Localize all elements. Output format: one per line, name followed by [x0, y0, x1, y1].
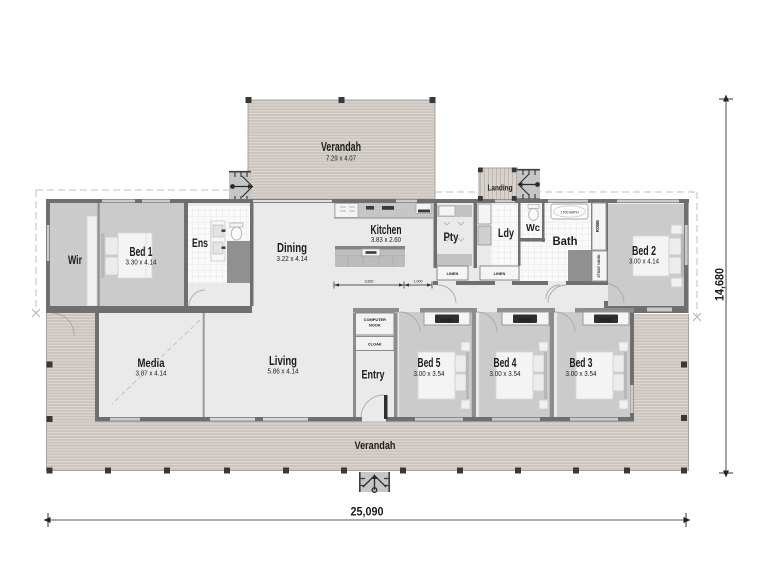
svg-text:Bath: Bath: [553, 234, 578, 248]
svg-text:ROBE: ROBE: [599, 318, 612, 323]
svg-text:NOOK: NOOK: [369, 323, 381, 328]
svg-text:3.87 x 4.14: 3.87 x 4.14: [136, 369, 167, 378]
svg-text:Entry: Entry: [362, 368, 385, 382]
svg-text:3.00 x 3.54: 3.00 x 3.54: [566, 369, 597, 378]
svg-text:Bed 3: Bed 3: [570, 356, 593, 370]
svg-text:3.22 x 4.14: 3.22 x 4.14: [277, 254, 308, 263]
svg-text:3,830: 3,830: [365, 280, 374, 284]
svg-text:Ens: Ens: [192, 238, 208, 250]
svg-text:Wir: Wir: [68, 255, 82, 267]
svg-text:Landing: Landing: [488, 183, 513, 193]
svg-text:25,090: 25,090: [351, 507, 384, 519]
svg-text:Wc: Wc: [526, 222, 540, 234]
svg-text:5.86 x 4.14: 5.86 x 4.14: [268, 367, 299, 376]
svg-text:1,000: 1,000: [414, 280, 423, 284]
svg-text:Bed 5: Bed 5: [418, 356, 441, 370]
svg-text:COMPUTER: COMPUTER: [364, 317, 386, 322]
svg-text:Dining: Dining: [277, 240, 307, 255]
svg-text:14,680: 14,680: [715, 268, 727, 301]
svg-text:ROBE: ROBE: [595, 220, 600, 232]
svg-text:Ldy: Ldy: [498, 228, 514, 240]
svg-text:3.00 x 3.54: 3.00 x 3.54: [414, 369, 445, 378]
svg-text:7.29 x 4.07: 7.29 x 4.07: [326, 154, 356, 163]
svg-text:3.30 x 4.14: 3.30 x 4.14: [126, 258, 157, 267]
svg-text:LINEN: LINEN: [447, 271, 459, 276]
svg-text:STUDY NOOK: STUDY NOOK: [597, 254, 601, 278]
svg-text:3.00 x 3.54: 3.00 x 3.54: [490, 369, 521, 378]
svg-text:CLOAK: CLOAK: [368, 342, 382, 347]
svg-text:ROBE: ROBE: [440, 318, 453, 323]
svg-text:Pty: Pty: [444, 232, 459, 244]
svg-text:1700 BATH: 1700 BATH: [560, 211, 579, 215]
svg-text:ROBE: ROBE: [518, 318, 531, 323]
svg-text:Verandah: Verandah: [321, 140, 361, 154]
svg-text:Verandah: Verandah: [355, 440, 396, 452]
svg-text:3.00 x 4.14: 3.00 x 4.14: [629, 257, 659, 266]
svg-text:LINEN: LINEN: [494, 271, 506, 276]
svg-text:Bed 4: Bed 4: [494, 356, 517, 370]
svg-text:3.83 x 2.60: 3.83 x 2.60: [371, 235, 401, 244]
